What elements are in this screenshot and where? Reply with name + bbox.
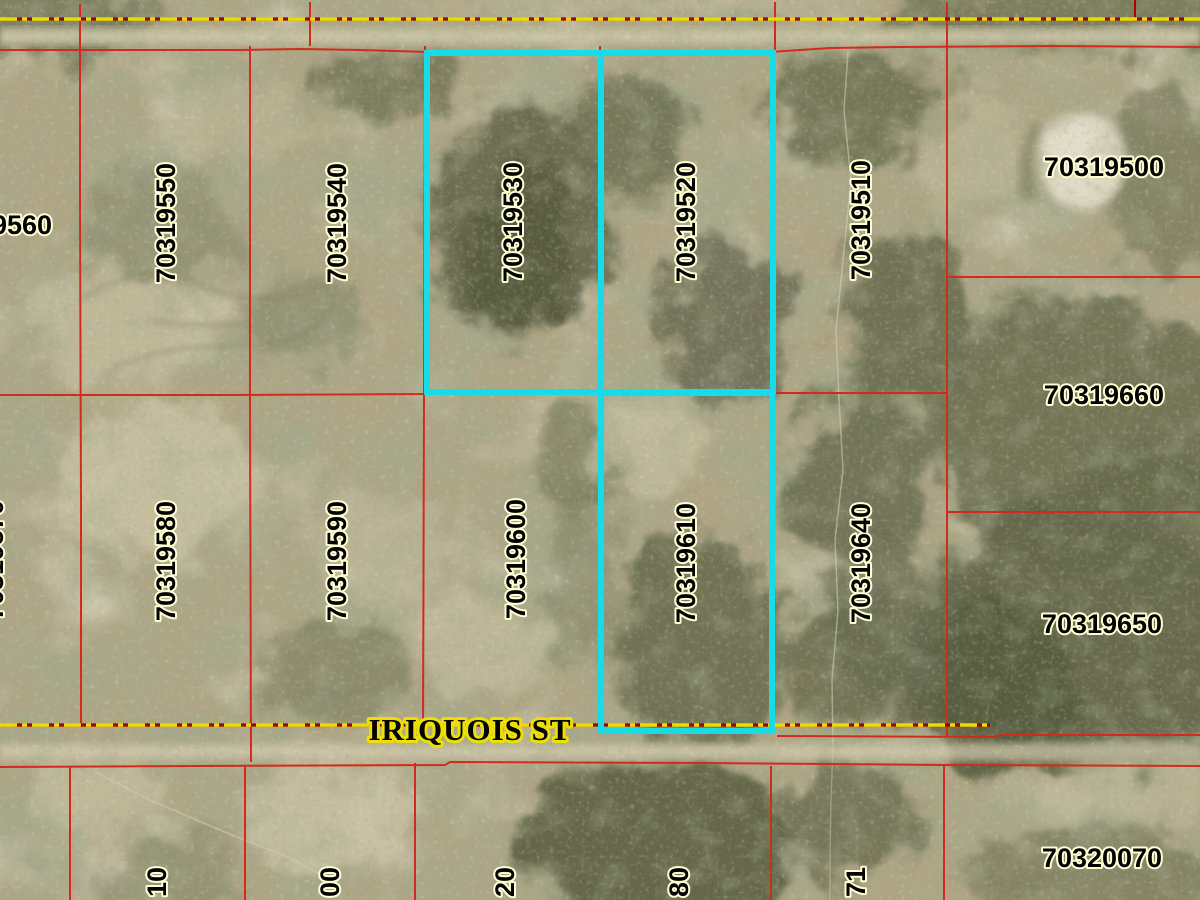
svg-text:70319610: 70319610: [671, 503, 701, 623]
svg-text:70319590: 70319590: [322, 501, 352, 621]
svg-text:70319650: 70319650: [1042, 609, 1162, 639]
svg-text:70319530: 70319530: [498, 162, 528, 282]
svg-text:80: 80: [664, 867, 694, 897]
svg-text:70319560: 70319560: [0, 210, 52, 240]
svg-text:70319500: 70319500: [1044, 152, 1164, 182]
svg-text:71: 71: [841, 867, 871, 897]
svg-text:70320070: 70320070: [1042, 843, 1162, 873]
svg-text:70319570: 70319570: [0, 500, 9, 620]
svg-text:70319600: 70319600: [501, 499, 531, 619]
svg-text:IRIQUOIS ST: IRIQUOIS ST: [368, 712, 571, 747]
svg-text:70319510: 70319510: [846, 160, 876, 280]
svg-text:70319580: 70319580: [151, 501, 181, 621]
svg-text:20: 20: [490, 867, 520, 897]
svg-text:70319540: 70319540: [322, 163, 352, 283]
svg-text:70319550: 70319550: [151, 163, 181, 283]
svg-text:70319640: 70319640: [846, 503, 876, 623]
svg-text:00: 00: [315, 867, 345, 897]
svg-text:70319520: 70319520: [671, 162, 701, 282]
svg-text:70319660: 70319660: [1044, 380, 1164, 410]
svg-text:10: 10: [142, 867, 172, 897]
